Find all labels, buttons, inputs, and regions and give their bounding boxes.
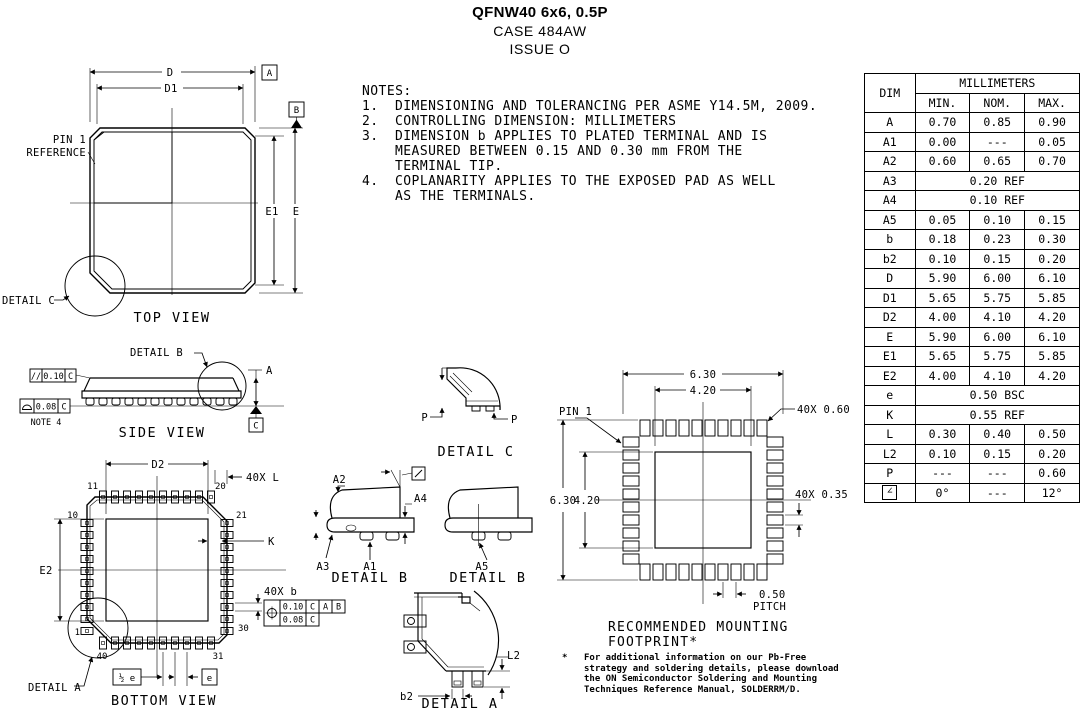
detail-a-drawing: b2 L2 DETAIL A xyxy=(388,583,540,711)
footprint-footnote: * For additional information on our Pb-F… xyxy=(562,653,839,695)
notes-list: 1.DIMENSIONING AND TOLERANCING PER ASME … xyxy=(362,99,862,204)
max-cell: 5.85 xyxy=(1025,347,1080,367)
value-span-cell: 0.20 REF xyxy=(915,171,1079,191)
detail-b-callout: DETAIL B xyxy=(130,347,183,359)
unit-header-cell: MILLIMETERS xyxy=(915,74,1079,94)
pin-11-label: 11 xyxy=(87,482,98,492)
dim-table-row: P------0.60 xyxy=(865,464,1080,484)
top-view-caption: TOP VIEW xyxy=(133,310,210,326)
dim-label-e2: E2 xyxy=(39,565,52,577)
footnote-line: strategy and soldering details, please d… xyxy=(584,664,839,675)
dim-cell: A1 xyxy=(865,132,916,152)
top-view-svg: D D1 E E1 A B PIN 1 REFERENCE DETAIL C T… xyxy=(0,58,340,332)
case-number: CASE 484AW xyxy=(0,23,1080,39)
dim-table-body: A0.700.850.90A10.00---0.05A20.600.650.70… xyxy=(865,113,1080,503)
nom-cell: 0.40 xyxy=(970,425,1025,445)
title-block: QFNW40 6x6, 0.5P CASE 484AW ISSUE O xyxy=(0,4,1080,57)
footnote-line: the ON Semiconductor Soldering and Mount… xyxy=(584,674,839,685)
dim-label-d: D xyxy=(167,67,174,79)
dim-label-b2: b2 xyxy=(400,691,413,703)
nom-cell: 5.75 xyxy=(970,347,1025,367)
position-value-2: 0.08 xyxy=(283,616,303,626)
datum-c-label: C xyxy=(253,422,258,432)
note-number: 4. xyxy=(362,174,395,204)
note-text: CONTROLLING DIMENSION: MILLIMETERS xyxy=(395,114,676,129)
min-cell: 5.65 xyxy=(915,288,970,308)
note-number: 2. xyxy=(362,114,395,129)
footprint-dim-420-left: 4.20 xyxy=(574,495,601,507)
position-datum-b: B xyxy=(336,603,341,613)
dim-table-row: K0.55 REF xyxy=(865,405,1080,425)
max-cell: 0.60 xyxy=(1025,464,1080,484)
note-item: 3.DIMENSION b APPLIES TO PLATED TERMINAL… xyxy=(362,129,862,174)
max-cell: 12° xyxy=(1025,483,1080,503)
detail-c-svg: P P DETAIL C xyxy=(398,360,544,464)
side-view-terminals xyxy=(86,398,237,405)
max-cell: 0.20 xyxy=(1025,444,1080,464)
nom-cell: 0.15 xyxy=(970,249,1025,269)
bottom-view-caption: BOTTOM VIEW xyxy=(111,693,217,709)
dim-cell: D xyxy=(865,269,916,289)
position-datum-c2: C xyxy=(310,616,315,626)
nom-header-cell: NOM. xyxy=(970,93,1025,113)
page-title: QFNW40 6x6, 0.5P xyxy=(0,4,1080,21)
max-cell: 5.85 xyxy=(1025,288,1080,308)
nom-cell: 0.23 xyxy=(970,230,1025,250)
detail-c-callout: DETAIL C xyxy=(2,295,55,307)
side-view-svg: // 0.10 C 0.08 C NOTE 4 DETAIL B A C SID… xyxy=(0,336,335,450)
coplanarity-value: 0.08 xyxy=(36,403,56,413)
parallelism-symbol: // xyxy=(31,372,41,382)
dim-table-row: L20.100.150.20 xyxy=(865,444,1080,464)
pin-31-label: 31 xyxy=(213,652,224,662)
footprint-caption: RECOMMENDED MOUNTING FOOTPRINT* xyxy=(608,620,789,650)
min-cell: 5.65 xyxy=(915,347,970,367)
nom-cell: 0.65 xyxy=(970,152,1025,172)
value-span-cell: 0.55 REF xyxy=(915,405,1079,425)
min-cell: 0.00 xyxy=(915,132,970,152)
note-number: 3. xyxy=(362,129,395,174)
dim-label-a4: A4 xyxy=(414,493,427,505)
min-cell: 5.90 xyxy=(915,269,970,289)
max-cell: 0.15 xyxy=(1025,210,1080,230)
pin-40-label: 40 xyxy=(97,652,108,662)
dim-table-row: L0.300.400.50 xyxy=(865,425,1080,445)
footprint-dim-420-top: 4.20 xyxy=(690,385,717,397)
note-text: DIMENSION b APPLIES TO PLATED TERMINAL A… xyxy=(395,129,767,174)
note-number: 1. xyxy=(362,99,395,114)
footprint-pitch-word: PITCH xyxy=(753,601,786,613)
position-datum-a: A xyxy=(323,603,328,613)
footprint-geometry xyxy=(557,370,811,604)
footnote-line: For additional information on our Pb-Fre… xyxy=(584,653,839,664)
nom-cell: 4.10 xyxy=(970,308,1025,328)
dim-label-d1: D1 xyxy=(164,83,177,95)
dim-table-row: b20.100.150.20 xyxy=(865,249,1080,269)
dim-cell: A5 xyxy=(865,210,916,230)
dim-table-row: ∠0°---12° xyxy=(865,483,1080,503)
footnote-line: Techniques Reference Manual, SOLDERRM/D. xyxy=(584,685,839,696)
max-header-cell: MAX. xyxy=(1025,93,1080,113)
detail-c-caption: DETAIL C xyxy=(437,444,514,460)
note-item: 4.COPLANARITY APPLIES TO THE EXPOSED PAD… xyxy=(362,174,862,204)
nom-cell: 0.85 xyxy=(970,113,1025,133)
detail-c-geometry xyxy=(430,368,508,419)
pitch-label-e: e xyxy=(207,674,212,684)
dim-cell: b2 xyxy=(865,249,916,269)
min-header-cell: MIN. xyxy=(915,93,970,113)
footprint-caption-line1: RECOMMENDED MOUNTING xyxy=(608,620,789,635)
dim-label-l2: L2 xyxy=(507,650,520,662)
note-4-reference: NOTE 4 xyxy=(31,418,62,428)
min-cell: 4.00 xyxy=(915,308,970,328)
footprint-dim-630-left: 6.30 xyxy=(550,495,577,507)
max-cell: 0.70 xyxy=(1025,152,1080,172)
dim-cell: E xyxy=(865,327,916,347)
dim-label-k: K xyxy=(268,536,275,548)
datum-b-label: B xyxy=(294,106,299,116)
footnote-asterisk: * xyxy=(562,653,584,695)
dim-table-row: A40.10 REF xyxy=(865,191,1080,211)
note-item: 2.CONTROLLING DIMENSION: MILLIMETERS xyxy=(362,114,862,129)
label-40x-l: 40X L xyxy=(246,472,279,484)
dim-label-d2: D2 xyxy=(151,459,164,471)
notes-section: NOTES: 1.DIMENSIONING AND TOLERANCING PE… xyxy=(362,84,862,204)
dim-table-header-row-1: DIM MILLIMETERS xyxy=(865,74,1080,94)
detail-c-drawing: P P DETAIL C xyxy=(398,360,544,464)
min-cell: 0.10 xyxy=(915,249,970,269)
dim-label-a: A xyxy=(266,365,273,377)
notes-heading: NOTES: xyxy=(362,84,862,99)
nom-cell: 6.00 xyxy=(970,269,1025,289)
dim-table-row: A50.050.100.15 xyxy=(865,210,1080,230)
dim-cell: D1 xyxy=(865,288,916,308)
footprint-pad-length-label: 40X 0.60 xyxy=(797,404,850,416)
nom-cell: 0.10 xyxy=(970,210,1025,230)
footprint-caption-line2: FOOTPRINT* xyxy=(608,635,789,650)
dim-table-row: D24.004.104.20 xyxy=(865,308,1080,328)
footprint-dim-630-top: 6.30 xyxy=(690,369,717,381)
footprint-pitch-value: 0.50 xyxy=(759,589,786,601)
dim-cell: A3 xyxy=(865,171,916,191)
min-cell: 5.90 xyxy=(915,327,970,347)
nom-cell: --- xyxy=(970,132,1025,152)
datum-a-label: A xyxy=(267,69,273,79)
pin1-reference-label-line2: REFERENCE xyxy=(26,147,86,159)
min-cell: 0.10 xyxy=(915,444,970,464)
position-value-1: 0.10 xyxy=(283,603,303,613)
footprint-drawing: 6.30 4.20 6.30 4.20 PIN 1 40X 0.60 40X 0… xyxy=(545,358,880,622)
detail-a-svg: b2 L2 DETAIL A xyxy=(388,583,540,711)
dim-label-a3: A3 xyxy=(316,561,329,573)
nom-cell: 0.15 xyxy=(970,444,1025,464)
dim-label-a2: A2 xyxy=(333,474,346,486)
drawing-page: QFNW40 6x6, 0.5P CASE 484AW ISSUE O NOTE… xyxy=(0,0,1080,711)
dim-table-row: b0.180.230.30 xyxy=(865,230,1080,250)
dim-table-row: E15.655.755.85 xyxy=(865,347,1080,367)
min-cell: 0.18 xyxy=(915,230,970,250)
angle-symbol: ∠ xyxy=(882,485,897,500)
max-cell: 6.10 xyxy=(1025,327,1080,347)
parallelism-datum: C xyxy=(68,372,73,382)
nom-cell: 6.00 xyxy=(970,327,1025,347)
detail-a-callout: DETAIL A xyxy=(28,682,81,694)
min-cell: 0.70 xyxy=(915,113,970,133)
max-cell: 0.20 xyxy=(1025,249,1080,269)
dim-table-row: D15.655.755.85 xyxy=(865,288,1080,308)
footprint-note-lines: For additional information on our Pb-Fre… xyxy=(584,653,839,695)
max-cell: 4.20 xyxy=(1025,366,1080,386)
note-text: COPLANARITY APPLIES TO THE EXPOSED PAD A… xyxy=(395,174,776,204)
label-40x-b: 40X b xyxy=(264,586,297,598)
dim-cell: A xyxy=(865,113,916,133)
value-span-cell: 0.50 BSC xyxy=(915,386,1079,406)
min-cell: 0.60 xyxy=(915,152,970,172)
dim-cell: D2 xyxy=(865,308,916,328)
detail-a-geometry xyxy=(404,591,510,699)
pin-20-label: 20 xyxy=(215,482,226,492)
nom-cell: --- xyxy=(970,483,1025,503)
top-view-geometry xyxy=(54,65,304,316)
dim-table-row: D5.906.006.10 xyxy=(865,269,1080,289)
pin-10-label: 10 xyxy=(67,511,78,521)
min-cell: 0.05 xyxy=(915,210,970,230)
parallelism-value: 0.10 xyxy=(43,372,63,382)
detail-b-right-svg: A5 DETAIL B xyxy=(428,462,550,588)
footprint-pad-width-label: 40X 0.35 xyxy=(795,489,848,501)
dim-table-row: E24.004.104.20 xyxy=(865,366,1080,386)
dim-table-row: A0.700.850.90 xyxy=(865,113,1080,133)
pin-30-label: 30 xyxy=(238,624,249,634)
dim-table: DIM MILLIMETERS MIN. NOM. MAX. A0.700.85… xyxy=(864,73,1080,503)
detail-b-right-drawing: A5 DETAIL B xyxy=(428,462,550,588)
max-cell: 0.90 xyxy=(1025,113,1080,133)
dim-label-p-right: P xyxy=(511,414,518,426)
note-text: DIMENSIONING AND TOLERANCING PER ASME Y1… xyxy=(395,99,817,114)
side-view-drawing: // 0.10 C 0.08 C NOTE 4 DETAIL B A C SID… xyxy=(0,336,335,450)
dim-table-row: A30.20 REF xyxy=(865,171,1080,191)
dim-table-row: A20.600.650.70 xyxy=(865,152,1080,172)
half-pitch-label: ½ e xyxy=(119,673,135,684)
nom-cell: 5.75 xyxy=(970,288,1025,308)
dimension-table: DIM MILLIMETERS MIN. NOM. MAX. A0.700.85… xyxy=(864,73,1080,503)
min-cell: 0.30 xyxy=(915,425,970,445)
max-cell: 0.05 xyxy=(1025,132,1080,152)
dim-header-cell: DIM xyxy=(865,74,916,113)
dim-cell: b xyxy=(865,230,916,250)
min-cell: 4.00 xyxy=(915,366,970,386)
min-cell: --- xyxy=(915,464,970,484)
max-cell: 0.30 xyxy=(1025,230,1080,250)
nom-cell: --- xyxy=(970,464,1025,484)
dim-label-e: E xyxy=(293,206,300,218)
coplanarity-datum: C xyxy=(61,403,66,413)
top-view-drawing: D D1 E E1 A B PIN 1 REFERENCE DETAIL C T… xyxy=(0,58,340,332)
value-span-cell: 0.10 REF xyxy=(915,191,1079,211)
dim-label-e1: E1 xyxy=(265,206,278,218)
detail-a-caption: DETAIL A xyxy=(421,696,498,711)
pin-1-label: 1 xyxy=(75,628,80,638)
max-cell: 0.50 xyxy=(1025,425,1080,445)
detail-b-right-geometry xyxy=(445,487,532,560)
dim-table-row: E5.906.006.10 xyxy=(865,327,1080,347)
dim-cell: A2 xyxy=(865,152,916,172)
dim-table-row: e0.50 BSC xyxy=(865,386,1080,406)
pin-21-label: 21 xyxy=(236,511,247,521)
pin1-reference-label-line1: PIN 1 xyxy=(53,134,86,146)
issue-revision: ISSUE O xyxy=(0,41,1080,57)
footprint-svg: 6.30 4.20 6.30 4.20 PIN 1 40X 0.60 40X 0… xyxy=(545,358,880,622)
dim-cell: A4 xyxy=(865,191,916,211)
min-cell: 0° xyxy=(915,483,970,503)
dim-table-row: A10.00---0.05 xyxy=(865,132,1080,152)
nom-cell: 4.10 xyxy=(970,366,1025,386)
dim-label-p-left: P xyxy=(421,412,428,424)
max-cell: 4.20 xyxy=(1025,308,1080,328)
footprint-pin1-label: PIN 1 xyxy=(559,406,592,418)
position-datum-c: C xyxy=(310,603,315,613)
note-item: 1.DIMENSIONING AND TOLERANCING PER ASME … xyxy=(362,99,862,114)
max-cell: 6.10 xyxy=(1025,269,1080,289)
